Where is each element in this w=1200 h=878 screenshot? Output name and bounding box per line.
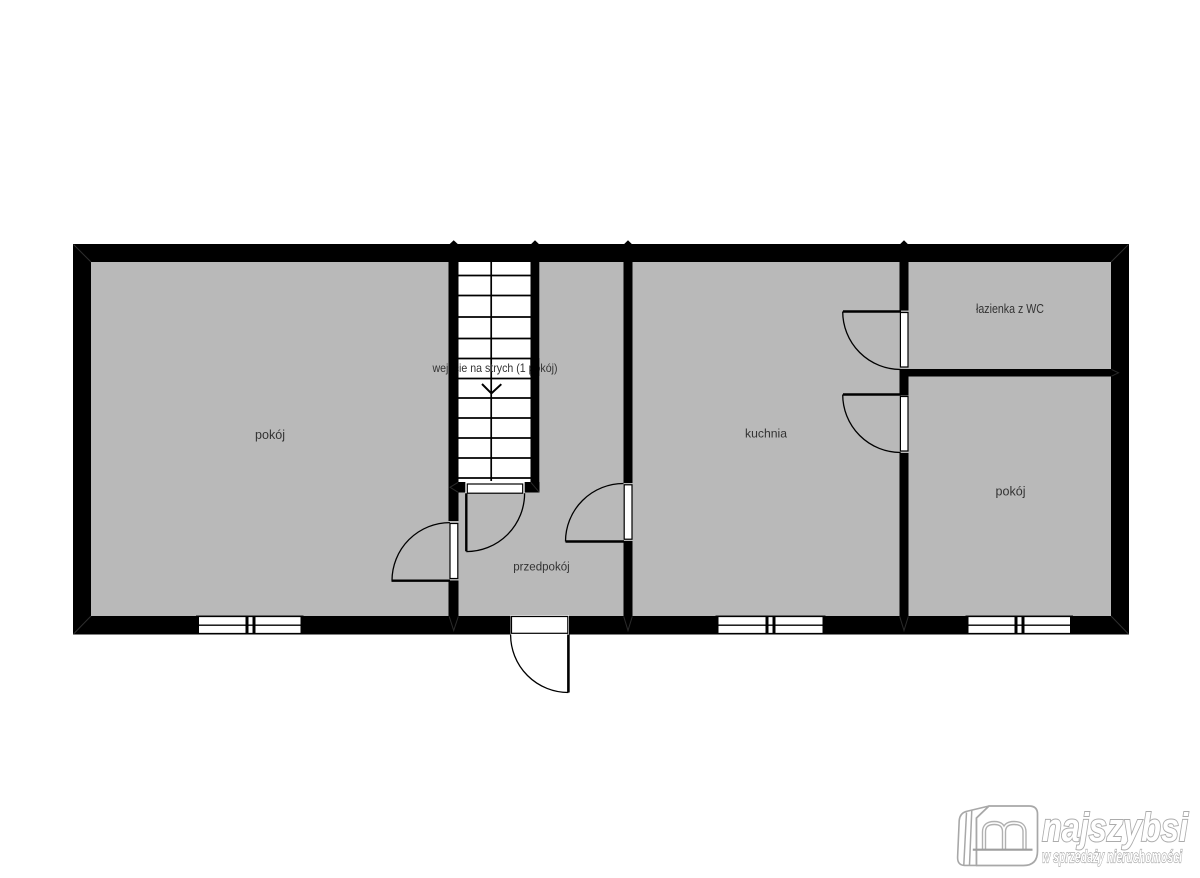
svg-text:łazienka z WC: łazienka z WC <box>976 302 1044 316</box>
svg-text:kuchnia: kuchnia <box>745 427 787 441</box>
svg-text:najszybsi: najszybsi <box>1042 806 1189 850</box>
svg-text:przedpokój: przedpokój <box>513 560 570 574</box>
svg-text:pokój: pokój <box>255 428 285 442</box>
svg-text:w sprzedaży nieruchomości: w sprzedaży nieruchomości <box>1042 847 1183 867</box>
svg-text:pokój: pokój <box>996 485 1026 499</box>
